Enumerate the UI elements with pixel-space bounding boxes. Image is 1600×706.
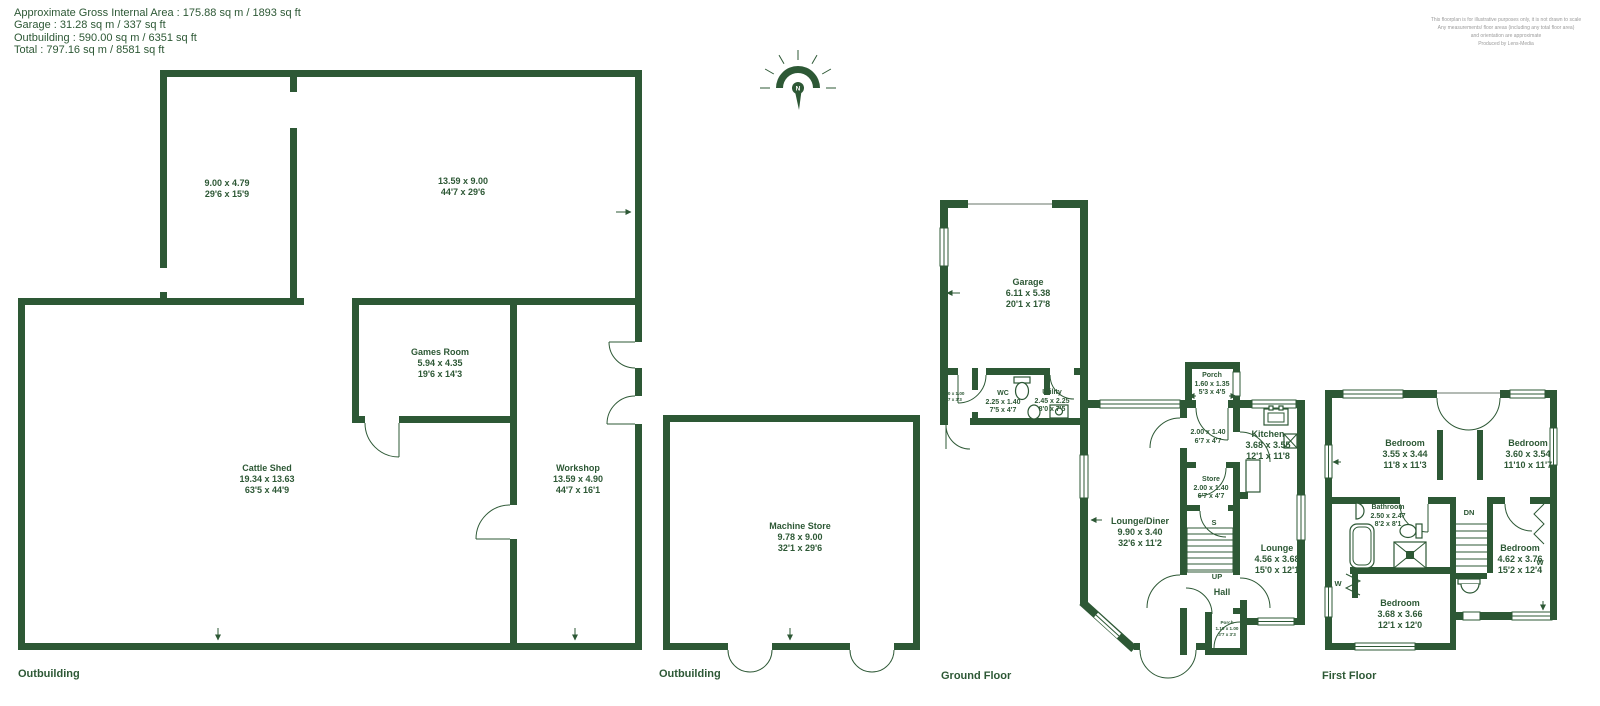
room-label-cattle-shed: Cattle Shed19.34 x 13.6363'5 x 44'9 — [239, 463, 294, 495]
room-label-kitchen: Kitchen3.68 x 3.5512'1 x 11'8 — [1245, 429, 1290, 461]
vanity-basin-icon — [1458, 579, 1480, 593]
section-label-outbuilding-1: Outbuilding — [18, 668, 80, 680]
disclaimer-line: Produced by Lens-Media — [1386, 40, 1600, 48]
room-label-bedroom2: Bedroom3.60 x 3.5411'10 x 11'7 — [1504, 438, 1552, 470]
first-floor-walls — [1325, 390, 1557, 650]
compass-icon: N — [760, 50, 836, 110]
open-door-leaf — [1246, 460, 1260, 492]
room-label-wc: WC2.25 x 1.407'5 x 4'7 — [985, 390, 1020, 416]
room-label-outbuilding-room1: 9.00 x 4.7929'6 x 15'9 — [204, 178, 249, 200]
room-label-porch-front: Porch1.60 x 1.355'3 x 4'5 — [1194, 372, 1229, 398]
summary-line: Total : 797.16 sq m / 8581 sq ft — [14, 44, 301, 56]
room-label-workshop: Workshop13.59 x 4.9044'7 x 16'1 — [553, 463, 603, 495]
room-label-machine-store: Machine Store9.78 x 9.0032'1 x 29'6 — [769, 521, 831, 553]
label-wardrobe-right: W — [1536, 558, 1543, 567]
room-label-games-room: Games Room5.94 x 4.3519'6 x 14'3 — [411, 347, 469, 379]
room-label-lounge-diner: Lounge/Diner9.90 x 3.4032'6 x 11'2 — [1111, 516, 1169, 548]
shower-icon — [1394, 542, 1426, 568]
room-label-side-lobby: 2.00 x 1.006'7 x 3'3 — [942, 391, 965, 403]
dimension-arrows — [218, 212, 1543, 640]
section-label-first-floor: First Floor — [1322, 670, 1376, 682]
wardrobe-zigzag-right — [1534, 504, 1544, 544]
label-stairs-up: UP — [1212, 572, 1222, 581]
room-label-bedroom1: Bedroom3.55 x 3.4411'8 x 11'3 — [1382, 438, 1427, 470]
room-label-entrance-lobby: 2.00 x 1.406'7 x 4'7 — [1190, 429, 1225, 446]
room-label-porch-rear: Porch1.10 x 1.003'7 x 3'3 — [1216, 620, 1239, 637]
section-label-ground-floor: Ground Floor — [941, 670, 1011, 682]
room-label-hall: Hall — [1214, 587, 1231, 598]
room-label-lounge: Lounge4.56 x 3.6815'0 x 12'1 — [1254, 543, 1299, 575]
bathroom-sink-icon — [1356, 503, 1364, 519]
compass-north-label: N — [796, 85, 801, 92]
disclaimer-line: and orientation are approximate — [1386, 32, 1600, 40]
outbuilding-left-walls — [18, 70, 642, 650]
room-label-garage: Garage6.11 x 5.3820'1 x 17'8 — [1006, 277, 1051, 309]
room-label-bathroom: Bathroom2.50 x 2.478'2 x 8'1 — [1370, 504, 1405, 530]
floorplan-canvas: N Approximate Gross Internal Area : 175.… — [0, 0, 1600, 706]
staircase-down — [1456, 524, 1487, 566]
room-label-outbuilding-room2: 13.59 x 9.0044'7 x 29'6 — [438, 176, 488, 198]
room-label-utility: Utility2.45 x 2.258'0 x 7'5 — [1034, 389, 1069, 415]
disclaimer-line: This floorplan is for illustrative purpo… — [1386, 16, 1600, 24]
area-summary: Approximate Gross Internal Area : 175.88… — [14, 7, 301, 56]
room-label-bedroom4: Bedroom3.68 x 3.6612'1 x 12'0 — [1377, 598, 1422, 630]
summary-line: Outbuilding : 590.00 sq m / 6351 sq ft — [14, 32, 301, 44]
summary-line: Garage : 31.28 sq m / 337 sq ft — [14, 19, 301, 31]
room-label-store: Store2.00 x 1.406'7 x 4'7 — [1193, 476, 1228, 502]
disclaimer: This floorplan is for illustrative purpo… — [1386, 16, 1600, 48]
kitchen-sink-icon — [1264, 406, 1288, 425]
section-label-outbuilding-2: Outbuilding — [659, 668, 721, 680]
summary-line: Approximate Gross Internal Area : 175.88… — [14, 7, 301, 19]
bathtub-icon — [1350, 524, 1374, 568]
label-stairs-down: DN — [1462, 508, 1477, 517]
floorplan-drawing: N — [0, 0, 1600, 706]
label-wardrobe-left: W — [1334, 579, 1341, 588]
staircase-up — [1187, 528, 1233, 572]
disclaimer-line: Any measurements/ floor areas (including… — [1386, 24, 1600, 32]
room-label-cupboard: S — [1211, 518, 1216, 527]
